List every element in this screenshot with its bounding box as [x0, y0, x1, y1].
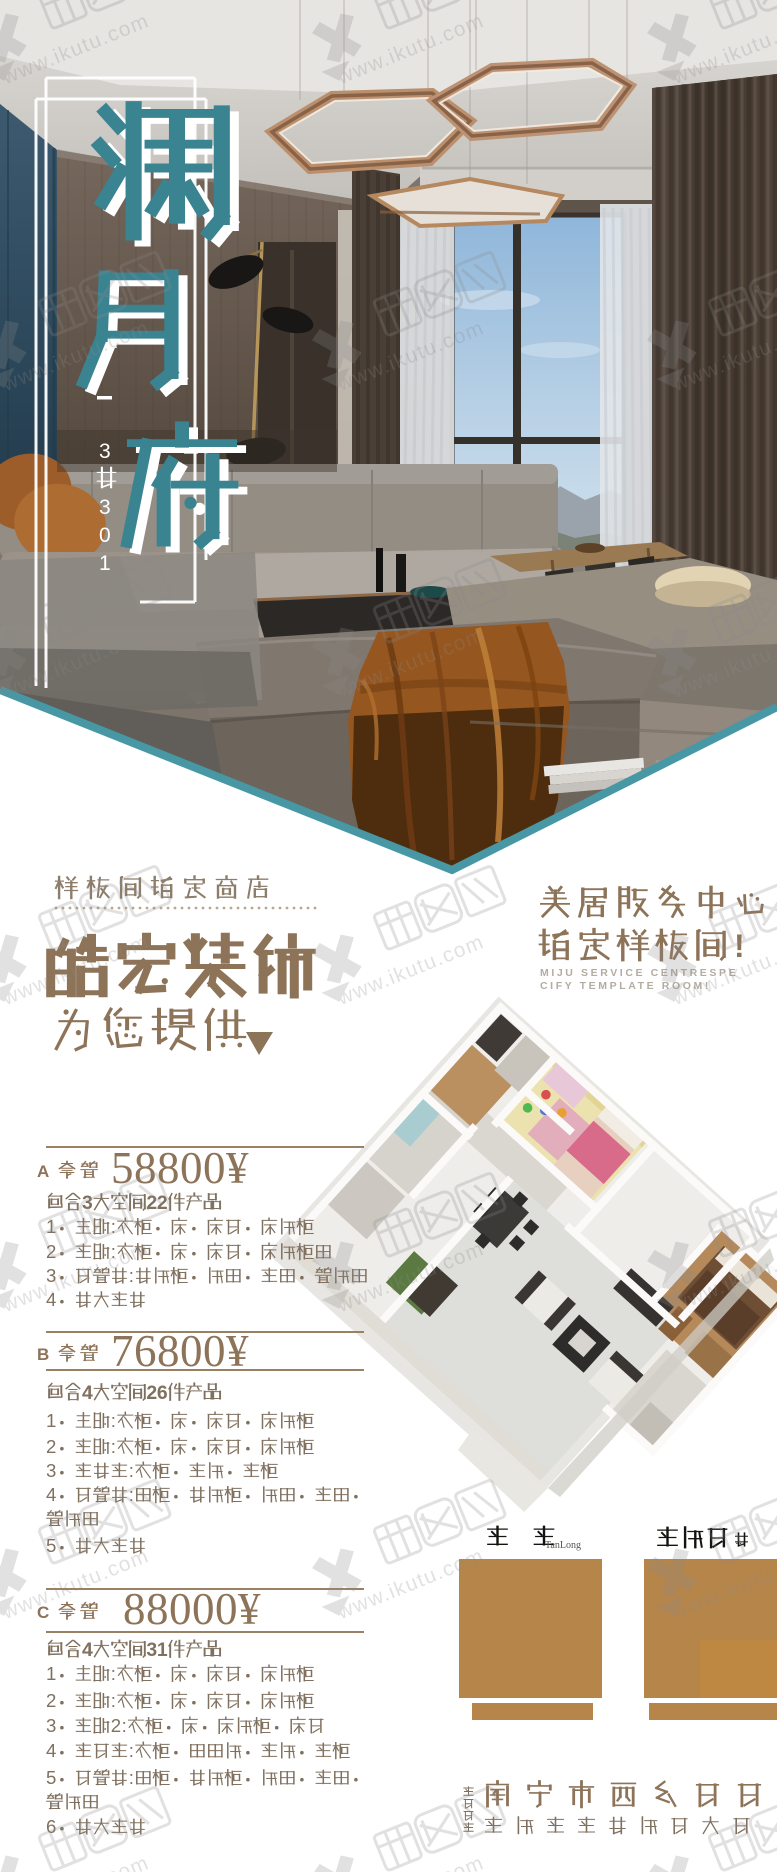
svg-text:3: 3 — [99, 440, 111, 463]
svg-text::: : — [111, 1690, 116, 1711]
svg-text::: : — [129, 1767, 134, 1788]
svg-text:76800¥: 76800¥ — [111, 1326, 249, 1376]
svg-text::: : — [129, 1740, 134, 1761]
svg-text::: : — [111, 1410, 116, 1431]
svg-text:2: 2 — [146, 1382, 157, 1404]
svg-text:3: 3 — [99, 496, 111, 519]
svg-text:B: B — [37, 1345, 49, 1364]
svg-text:4: 4 — [82, 1639, 93, 1661]
svg-text:TanLong: TanLong — [545, 1540, 581, 1551]
svg-text:2: 2 — [111, 1715, 121, 1736]
svg-text:3: 3 — [46, 1715, 56, 1736]
svg-text:4: 4 — [46, 1740, 56, 1761]
svg-text:4: 4 — [46, 1484, 56, 1505]
svg-text::: : — [129, 1265, 134, 1286]
svg-text:6: 6 — [157, 1382, 168, 1404]
svg-text:1: 1 — [99, 552, 111, 575]
svg-text:A: A — [37, 1162, 49, 1181]
svg-text:88000¥: 88000¥ — [123, 1584, 261, 1634]
svg-text:1: 1 — [157, 1639, 168, 1661]
svg-text::: : — [122, 1715, 127, 1736]
svg-text:4: 4 — [82, 1382, 93, 1404]
svg-text:2: 2 — [46, 1690, 56, 1711]
svg-text:5: 5 — [46, 1767, 56, 1788]
svg-text::: : — [111, 1663, 116, 1684]
svg-text:0: 0 — [99, 524, 111, 547]
svg-text::: : — [111, 1436, 116, 1457]
svg-text:3: 3 — [46, 1460, 56, 1481]
svg-text:58800¥: 58800¥ — [111, 1143, 249, 1193]
svg-text:1: 1 — [46, 1663, 56, 1684]
svg-text:2: 2 — [46, 1436, 56, 1457]
svg-text:3: 3 — [146, 1639, 157, 1661]
svg-text:1: 1 — [46, 1410, 56, 1431]
svg-text::: : — [129, 1460, 134, 1481]
